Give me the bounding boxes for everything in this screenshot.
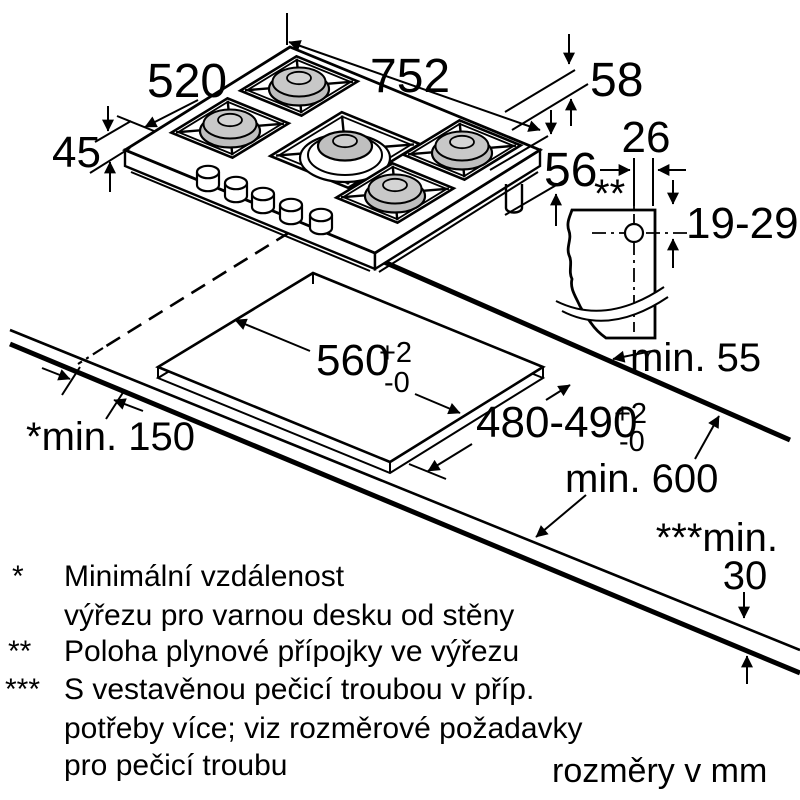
hob-installation-diagram: 752 520 45 58 56 — [0, 0, 800, 800]
control-knob-1 — [197, 166, 219, 191]
hob-depth-label: 520 — [147, 55, 227, 108]
control-knob-4 — [280, 199, 302, 224]
gas-offset-1-label: 58 — [590, 54, 643, 107]
footnotes: * Minimální vzdálenost výřezu pro varnou… — [5, 560, 583, 782]
min-worktop-depth-label: min. 600 — [565, 457, 718, 501]
control-knob-2 — [225, 177, 247, 202]
min-back-label: min. 55 — [630, 336, 761, 380]
footnote-marker-2: ** — [8, 635, 32, 668]
min-side-wall-label: *min. 150 — [26, 415, 195, 459]
detail-range-label: 19-29 — [686, 199, 799, 248]
dim-hob-height: 45 — [52, 106, 131, 192]
footnote-1-line-2: výřezu pro varnou desku od stěny — [64, 599, 514, 632]
cutout-depth-tol-minus: -0 — [619, 426, 645, 458]
footnote-1-line-1: Minimální vzdálenost — [64, 560, 345, 593]
cutout-width-tol-minus: -0 — [384, 367, 410, 399]
footnote-2-line-1: Poloha plynové přípojky ve výřezu — [64, 635, 519, 668]
dim-min-back: min. 55 — [613, 336, 761, 380]
hob-width-label: 752 — [370, 50, 450, 103]
diagram-canvas: 752 520 45 58 56 — [0, 0, 800, 800]
control-knob-3 — [252, 188, 274, 213]
detail-marker-label: ** — [594, 172, 625, 216]
footnote-3-line-1: S vestavěnou pečicí troubou v příp. — [64, 673, 534, 706]
gas-offset-2-label: 56 — [544, 144, 597, 197]
footnote-3-line-2: potřeby více; viz rozměrové požadavky — [64, 712, 583, 745]
footnote-3-line-3: pro pečicí troubu — [64, 749, 287, 782]
cutout-width-tol-plus: +2 — [379, 337, 412, 369]
footnote-marker-3: *** — [5, 673, 40, 706]
gas-inlet-point — [625, 224, 643, 242]
footnote-marker-1: * — [12, 560, 24, 593]
min-below-value-label: 30 — [723, 554, 768, 598]
control-knob-5 — [310, 209, 332, 234]
detail-offset-label: 26 — [622, 113, 671, 162]
dim-detail-range: 19-29 — [673, 180, 799, 268]
units-note: rozměry v mm — [552, 752, 767, 790]
